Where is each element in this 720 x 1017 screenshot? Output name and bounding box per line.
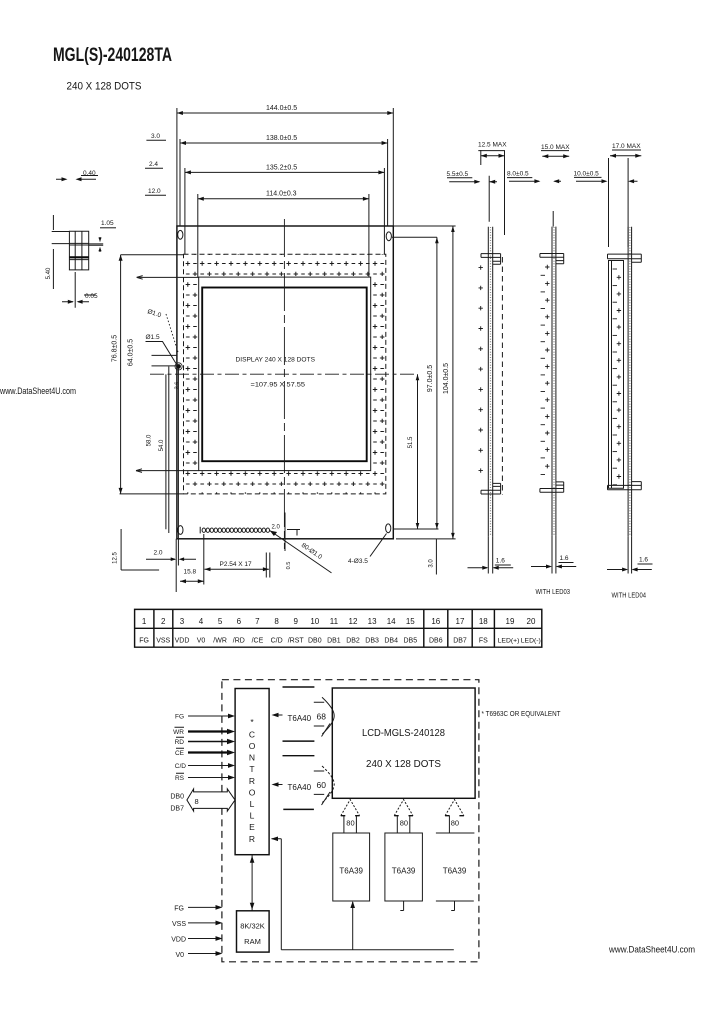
svg-text:15.0 MAX: 15.0 MAX [541, 144, 570, 151]
svg-text:DB3: DB3 [365, 638, 379, 645]
svg-text:T6A39: T6A39 [443, 867, 467, 876]
svg-text:2.0: 2.0 [154, 550, 163, 557]
svg-text:R: R [249, 834, 255, 844]
svg-text:80: 80 [346, 819, 354, 828]
svg-text:T6A39: T6A39 [339, 867, 363, 876]
svg-text:19: 19 [506, 617, 515, 626]
svg-text:16: 16 [431, 617, 440, 626]
svg-text:1.6: 1.6 [639, 557, 648, 564]
svg-text:/WR: /WR [213, 638, 227, 645]
svg-text:104.0±0.5: 104.0±0.5 [443, 363, 450, 394]
svg-text:97.0±0.5: 97.0±0.5 [427, 365, 434, 392]
svg-text:114.0±0.3: 114.0±0.3 [266, 191, 297, 198]
svg-text:0.5: 0.5 [286, 562, 292, 570]
svg-text:www.DataSheet4U.com: www.DataSheet4U.com [608, 945, 695, 955]
svg-text:11: 11 [330, 617, 339, 626]
svg-text:www.DataSheet4U.com: www.DataSheet4U.com [0, 386, 76, 396]
svg-text:4-Ø3.5: 4-Ø3.5 [348, 558, 368, 565]
svg-text:Ø1.5: Ø1.5 [146, 334, 160, 341]
svg-text:DB0: DB0 [170, 794, 184, 801]
svg-text:T6A40: T6A40 [288, 714, 312, 723]
svg-text:8: 8 [274, 617, 279, 626]
svg-text:12: 12 [349, 617, 358, 626]
svg-text:FG: FG [174, 906, 184, 913]
svg-text:5.5±0.5: 5.5±0.5 [447, 171, 469, 178]
svg-text:3.0: 3.0 [429, 559, 435, 568]
svg-text:LED(-): LED(-) [521, 638, 541, 645]
svg-text:LCD-MGLS-240128: LCD-MGLS-240128 [362, 727, 445, 739]
svg-text:2.4: 2.4 [149, 161, 158, 168]
svg-text:58.0: 58.0 [147, 434, 153, 446]
svg-text:DB1: DB1 [327, 638, 341, 645]
svg-text:=107.95 X 57.55: =107.95 X 57.55 [251, 382, 306, 389]
svg-text:2: 2 [161, 617, 166, 626]
svg-text:V0: V0 [175, 952, 184, 959]
svg-text:DB7: DB7 [453, 638, 467, 645]
svg-text:VSS: VSS [156, 638, 170, 645]
svg-text:* T6963C OR EQUIVALENT: * T6963C OR EQUIVALENT [482, 709, 561, 718]
svg-text:60: 60 [317, 780, 327, 790]
svg-text:54.0: 54.0 [159, 439, 165, 451]
svg-text:0.05: 0.05 [85, 293, 98, 300]
svg-text:51.5: 51.5 [408, 436, 414, 448]
svg-text:/RD: /RD [233, 638, 245, 645]
svg-text:10: 10 [310, 617, 319, 626]
svg-text:5.40: 5.40 [46, 267, 52, 279]
svg-text:V0: V0 [197, 638, 206, 645]
svg-text:3.0: 3.0 [151, 133, 160, 140]
svg-text:10.0±0.5: 10.0±0.5 [574, 170, 600, 177]
svg-text:WITH LED04: WITH LED04 [612, 593, 647, 600]
svg-text:1.05: 1.05 [101, 220, 114, 227]
svg-text:C/D: C/D [175, 763, 187, 770]
svg-text:240 X 128 DOTS: 240 X 128 DOTS [67, 81, 142, 93]
svg-text:T6A40: T6A40 [288, 783, 312, 792]
svg-text:DB5: DB5 [403, 638, 417, 645]
svg-text:135.2±0.5: 135.2±0.5 [266, 165, 297, 172]
svg-text:2.0: 2.0 [272, 525, 281, 531]
svg-text:18: 18 [479, 617, 488, 626]
svg-text:L: L [250, 811, 255, 821]
svg-text:76.8±0.5: 76.8±0.5 [112, 335, 119, 362]
svg-text:7: 7 [255, 617, 260, 626]
svg-text:MGL(S)-240128TA: MGL(S)-240128TA [53, 45, 172, 66]
svg-text:C/D: C/D [271, 638, 283, 645]
svg-text:6: 6 [237, 617, 242, 626]
svg-text:WR: WR [173, 729, 184, 736]
svg-text:WITH LED03: WITH LED03 [536, 589, 571, 596]
svg-text:L: L [250, 799, 255, 809]
svg-text:DB7: DB7 [170, 806, 184, 813]
svg-text:13: 13 [368, 617, 377, 626]
svg-text:/RST: /RST [288, 638, 305, 645]
svg-text:80: 80 [451, 819, 459, 828]
svg-text:T6A39: T6A39 [392, 867, 416, 876]
svg-text:RD: RD [175, 739, 185, 746]
svg-text:3: 3 [180, 617, 185, 626]
svg-text:O: O [249, 741, 256, 751]
svg-text:P2.54 X 17: P2.54 X 17 [220, 561, 253, 568]
svg-text:RAM: RAM [244, 937, 261, 946]
svg-text:N: N [249, 753, 255, 763]
svg-text:DB6: DB6 [429, 638, 443, 645]
svg-text:E: E [249, 822, 255, 832]
svg-text:/CE: /CE [252, 638, 264, 645]
svg-text:DB0: DB0 [308, 638, 322, 645]
svg-text:144.0±0.5: 144.0±0.5 [266, 105, 297, 112]
svg-text:DISPLAY 240 X 128 DOTS: DISPLAY 240 X 128 DOTS [236, 357, 316, 364]
svg-text:LED(+): LED(+) [498, 638, 520, 645]
svg-text:8.0±0.5: 8.0±0.5 [507, 170, 529, 177]
svg-text:15: 15 [406, 617, 415, 626]
svg-text:T: T [249, 764, 254, 774]
svg-text:17: 17 [456, 617, 465, 626]
svg-text:20: 20 [527, 617, 536, 626]
svg-text:C: C [249, 729, 255, 739]
svg-text:RS: RS [175, 775, 185, 782]
svg-text:1: 1 [142, 617, 147, 626]
svg-text:FG: FG [139, 638, 149, 645]
svg-text:12.0: 12.0 [148, 188, 161, 195]
svg-text:12.5: 12.5 [113, 552, 119, 564]
svg-text:15.8: 15.8 [184, 569, 197, 576]
svg-text:8K/32K: 8K/32K [240, 922, 265, 931]
svg-text:12.5 MAX: 12.5 MAX [478, 142, 507, 149]
svg-text:68: 68 [317, 712, 327, 722]
svg-text:FG: FG [175, 714, 184, 721]
svg-text:64.0±0.5: 64.0±0.5 [128, 339, 135, 366]
svg-text:1.6: 1.6 [560, 555, 569, 562]
svg-text:VDD: VDD [171, 937, 186, 944]
svg-text:VDD: VDD [175, 638, 190, 645]
svg-text:VSS: VSS [172, 921, 186, 928]
svg-text:4: 4 [199, 617, 204, 626]
svg-text:CE: CE [175, 750, 185, 757]
svg-text:17.0 MAX: 17.0 MAX [612, 143, 641, 150]
svg-text:FS: FS [479, 638, 488, 645]
svg-text:DB4: DB4 [384, 638, 398, 645]
svg-text:5: 5 [218, 617, 223, 626]
svg-text:138.0±0.5: 138.0±0.5 [266, 135, 297, 142]
svg-text:240 X 128 DOTS: 240 X 128 DOTS [366, 758, 441, 770]
svg-text:R: R [249, 776, 255, 786]
svg-text:3.6: 3.6 [175, 382, 181, 390]
svg-text:9: 9 [293, 617, 298, 626]
svg-text:DB2: DB2 [346, 638, 360, 645]
svg-text:O: O [249, 787, 256, 797]
svg-text:8: 8 [195, 797, 199, 806]
svg-text:80: 80 [400, 819, 408, 828]
svg-text:14: 14 [387, 617, 396, 626]
svg-text:1.6: 1.6 [496, 558, 505, 565]
